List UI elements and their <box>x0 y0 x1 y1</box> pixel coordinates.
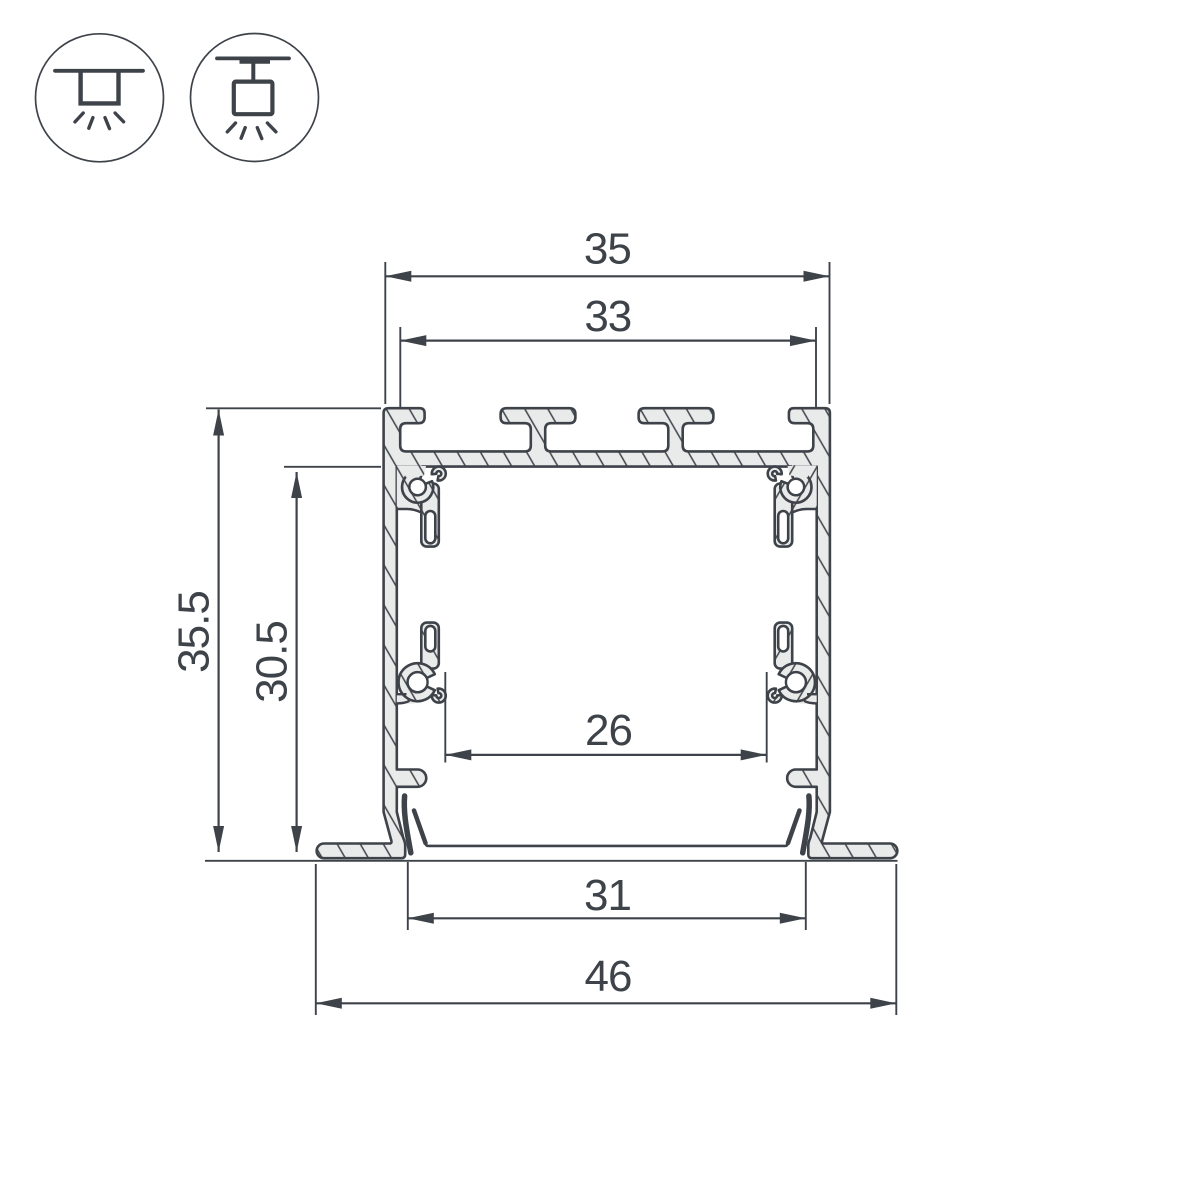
svg-text:33: 33 <box>584 292 631 341</box>
svg-text:26: 26 <box>585 706 632 755</box>
svg-text:31: 31 <box>584 871 631 920</box>
svg-text:35: 35 <box>584 225 631 274</box>
svg-text:35.5: 35.5 <box>170 591 219 673</box>
svg-text:30.5: 30.5 <box>248 621 297 703</box>
svg-text:46: 46 <box>585 952 632 1001</box>
